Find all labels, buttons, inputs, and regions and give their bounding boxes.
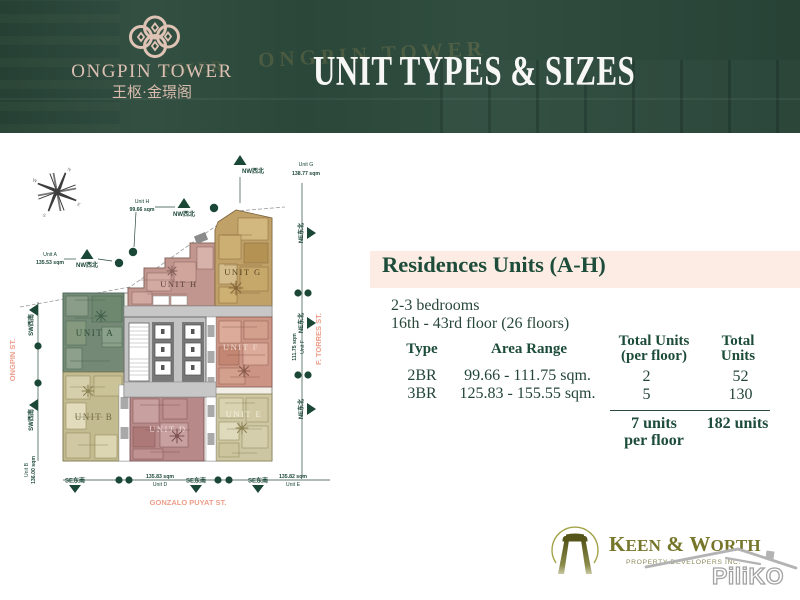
svg-text:Unit F: Unit F	[300, 340, 306, 354]
svg-text:NW西北: NW西北	[173, 210, 195, 218]
svg-text:SE东南: SE东南	[186, 477, 206, 485]
svg-text:NW西北: NW西北	[76, 261, 98, 269]
svg-text:NW西北: NW西北	[242, 167, 264, 175]
svg-text:Unit G: Unit G	[299, 162, 314, 168]
svg-text:SE东南: SE东南	[65, 477, 85, 485]
svg-text:UNIT A: UNIT A	[76, 328, 115, 338]
svg-text:W: W	[32, 177, 39, 184]
svg-text:UNIT G: UNIT G	[224, 267, 261, 277]
svg-text:SW西南: SW西南	[27, 409, 35, 431]
svg-text:136.00 sqm: 136.00 sqm	[31, 456, 37, 484]
svg-text:UNIT H: UNIT H	[160, 279, 197, 289]
svg-text:NE东北: NE东北	[297, 313, 305, 333]
svg-text:E: E	[76, 202, 81, 208]
svg-text:138.77 sqm: 138.77 sqm	[292, 171, 320, 177]
svg-text:99.66 sqm: 99.66 sqm	[129, 207, 154, 213]
svg-text:Unit A: Unit A	[43, 252, 57, 258]
svg-text:Unit H: Unit H	[135, 199, 150, 205]
svg-text:Unit B: Unit B	[24, 462, 30, 477]
svg-text:S: S	[42, 212, 47, 218]
svg-text:N: N	[67, 167, 72, 173]
svg-text:135.53 sqm: 135.53 sqm	[36, 260, 64, 266]
svg-text:NE东北: NE东北	[297, 399, 305, 419]
svg-text:Unit D: Unit D	[153, 482, 168, 488]
svg-text:UNIT F: UNIT F	[223, 342, 259, 352]
svg-text:SE东南: SE东南	[248, 477, 268, 485]
svg-text:GONZALO PUYAT ST.: GONZALO PUYAT ST.	[150, 498, 227, 507]
svg-text:NE东北: NE东北	[297, 223, 305, 243]
svg-text:ONGPIN ST.: ONGPIN ST.	[8, 339, 17, 382]
svg-text:111.75 sqm: 111.75 sqm	[292, 333, 298, 361]
svg-text:Unit E: Unit E	[286, 482, 301, 488]
svg-text:135.83 sqm: 135.83 sqm	[146, 474, 174, 480]
svg-text:SW西南: SW西南	[27, 314, 35, 336]
svg-text:135.82 sqm: 135.82 sqm	[279, 474, 307, 480]
svg-text:UNIT E: UNIT E	[226, 409, 262, 419]
svg-text:F. TORRES ST.: F. TORRES ST.	[314, 313, 323, 365]
